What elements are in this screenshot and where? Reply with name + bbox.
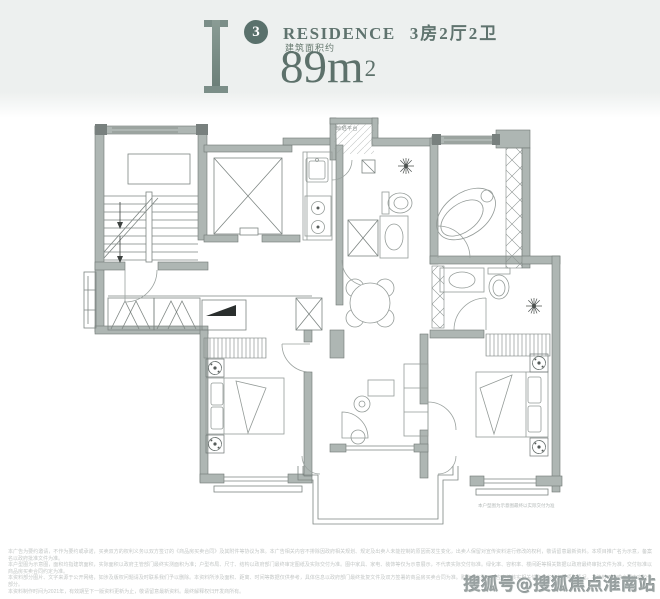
toilet-bowl: [489, 275, 509, 299]
living-room-furniture: [342, 364, 428, 444]
shower-symbol-master: [526, 298, 542, 314]
balcony: [298, 466, 458, 524]
dining-set: [346, 279, 394, 327]
drying-platform-label: 晾晒平台: [336, 125, 358, 132]
floorplan-page: 3 RESIDENCE3房2厅2卫 建筑面积约 89m2: [0, 0, 660, 599]
walls: [95, 118, 562, 492]
toilet-tank: [488, 268, 510, 274]
bedroom3-furniture: [427, 178, 505, 251]
hall-closets: [108, 296, 312, 330]
coffee-table: [368, 380, 394, 396]
vanity: [380, 216, 408, 258]
stove: [305, 196, 331, 236]
flue-strip: [432, 266, 444, 328]
insulated-wall-strip: [506, 148, 522, 268]
disclaimer-line: 本广告为要约邀请，不作为要约或承诺，买卖双方的权利义务以双方签订的《商品房买卖合…: [8, 549, 652, 562]
master-bedroom-furniture: [476, 372, 548, 437]
floor-plan-drawing: [0, 0, 660, 599]
master-bath-fixtures: [440, 268, 510, 299]
wardrobe-bedroom2: [204, 338, 266, 358]
plan-footnote: 本户型图为示意图最终以实际交付为准: [478, 503, 555, 509]
kitchen-fixtures: [303, 152, 332, 240]
wardrobe-master: [486, 334, 550, 356]
staircase: [104, 154, 198, 263]
entry-door-marker: [206, 305, 236, 316]
guest-bath-fixtures: [380, 192, 412, 258]
bedroom2-furniture: [206, 378, 284, 434]
watermark: 搜狐号@搜狐焦点淮南站: [464, 570, 657, 595]
furniture: [206, 152, 548, 456]
thin-lines: [84, 128, 548, 524]
elevator-shaft: [214, 158, 282, 235]
shower-symbol-guest: [398, 158, 414, 174]
